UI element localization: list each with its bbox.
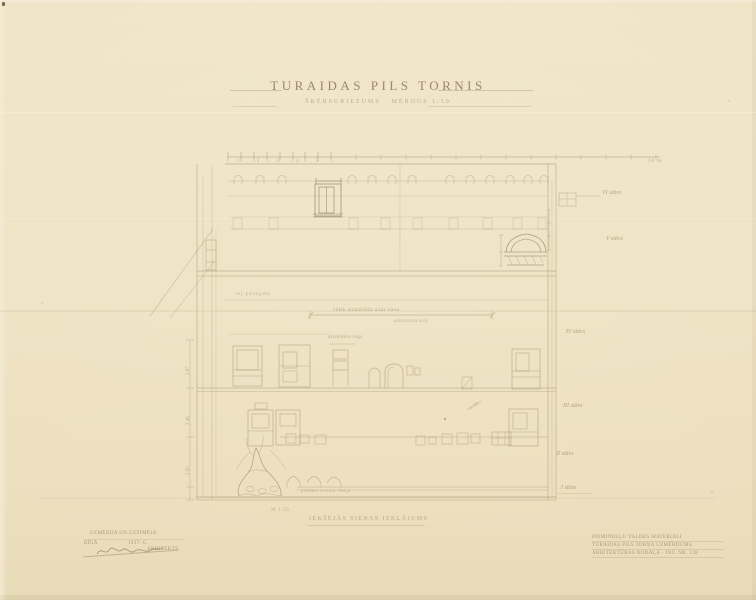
floor-label-4: IV stāvs — [566, 329, 585, 335]
annotation-blocked-opening: vēlāk aizmūrētās ailas vieta — [333, 308, 399, 313]
stone-arches — [287, 477, 341, 489]
stamp-block-right: PIEMINEKĻU VALDES MATERIĀLI TURAIDAS PIL… — [592, 535, 724, 559]
annotation-walled-window: aizmūrēts logs — [328, 335, 363, 340]
dim-label-1: 2.87 — [186, 366, 191, 375]
detail-top-right — [547, 193, 600, 250]
annotation-ground-note: pamatu virsējā līnija — [301, 489, 350, 494]
floor-label-1: I stāvs — [561, 485, 577, 491]
floor-label-underline — [558, 493, 592, 494]
dim-label-3: 2.60 — [186, 466, 191, 475]
floor-label-5: V stāvs — [606, 236, 623, 242]
stamp-right-line1: PIEMINEKĻU VALDES MATERIĀLI — [592, 535, 724, 542]
floor-label-2: II stāvs — [556, 451, 574, 457]
floor-label-3: III stāvs — [563, 403, 583, 409]
drawing-caption: IEKŠĒJĀS SIENAS IZKLĀJUMS — [309, 516, 428, 522]
stamp-left-rule — [84, 539, 184, 540]
scale-numbers: 1 2 3 4 5 — [237, 159, 327, 164]
lower-windows — [248, 403, 538, 446]
floor-label-6: VI stāvs — [602, 190, 621, 196]
wall-structure — [40, 164, 716, 500]
stamp-right-line3: ARHITEKTŪRAS NODAĻA · INV. NR. 138 — [592, 551, 724, 558]
annotation-former-ceiling: bij. pārsegums — [236, 292, 271, 297]
drawing-canvas — [0, 0, 756, 600]
caption-underline — [307, 525, 425, 526]
specks — [41, 100, 729, 492]
mid-windows — [233, 344, 540, 410]
dim-label-2: 2.46 — [186, 416, 191, 425]
drawing-sheet: TURAIDAS PILS TORNIS ŠĶĒRSGRIEZUMS · MĒR… — [0, 0, 756, 600]
scale-note: M 1:50 — [271, 508, 289, 513]
wall-detail-left — [150, 229, 216, 318]
window-detail-top — [313, 178, 343, 217]
stamp-right-line2: TURAIDAS PILS TORŅA UZMĒRĪJUMS — [592, 543, 724, 550]
scale-end-label: 10 m — [648, 159, 662, 164]
arch-row — [234, 176, 548, 185]
niche-row — [233, 218, 546, 229]
stamp-left-line1: UZMĒRĪJA UN UZZĪMĒJA — [90, 531, 157, 536]
annotation-blocked-opening-sub: aizmūrēta aila — [394, 319, 428, 324]
arch-section-detail — [499, 234, 547, 266]
